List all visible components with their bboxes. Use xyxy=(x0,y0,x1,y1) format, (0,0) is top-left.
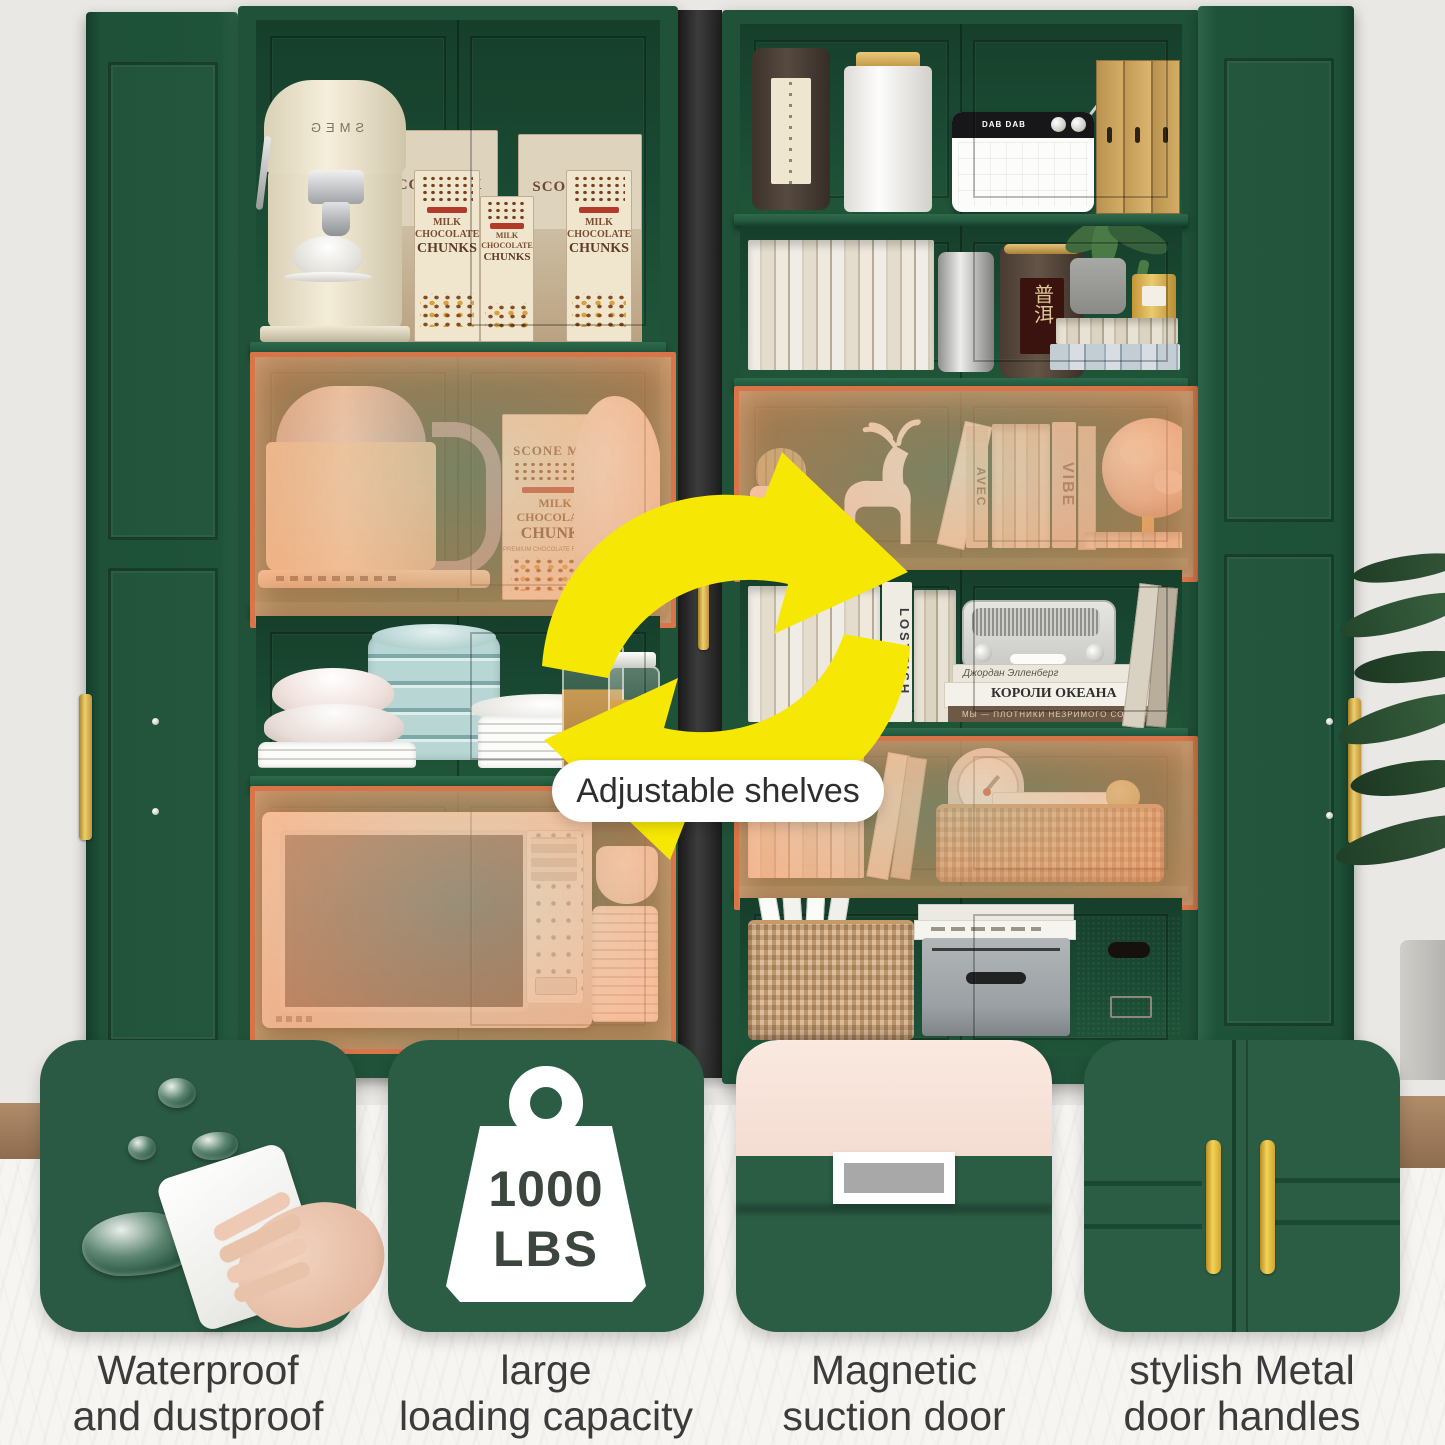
choc-line: CHUNKS xyxy=(415,241,479,257)
choc-line: MILK xyxy=(415,217,479,229)
start-button xyxy=(535,977,577,995)
book-flat: Джордан Элленберг xyxy=(952,664,1144,684)
book-text-lines xyxy=(931,927,1041,931)
weight-unit: LBS xyxy=(446,1220,646,1278)
choc-line: CHOCOLATE xyxy=(481,241,533,250)
choc-line: CHUNKS xyxy=(567,241,631,257)
radio-antenna xyxy=(1070,62,1131,139)
plant-pot xyxy=(1400,940,1445,1080)
plant-leaf xyxy=(1348,754,1445,803)
cookie-art xyxy=(572,293,626,327)
choc-line: CHOCOLATE xyxy=(415,229,479,241)
water-drop xyxy=(158,1078,196,1108)
brand-bar xyxy=(427,207,468,213)
right-shelf-6 xyxy=(740,898,1182,1056)
globe-landmass xyxy=(1120,438,1154,464)
cube-handle-hole xyxy=(1108,942,1150,958)
cookie-art xyxy=(420,293,474,327)
plate-stack xyxy=(592,906,658,1022)
hinge-dot xyxy=(1326,812,1333,819)
chocolate-chunks-box: MILK CHOCOLATE CHUNKS xyxy=(480,196,534,342)
left-shelf-1: SCONE MIX SCONE MIX MILK CHOCOLATE CHUNK… xyxy=(256,20,660,342)
radio-top-band: DAB DAB xyxy=(952,112,1094,138)
radio-knob xyxy=(1071,117,1086,132)
door-groove xyxy=(1084,1181,1202,1186)
caption-line: stylish Metal xyxy=(1068,1348,1416,1394)
fabric-storage-cube xyxy=(1076,916,1180,1036)
brand-bar xyxy=(579,207,620,213)
canister-label xyxy=(771,78,811,184)
feature-tile-handles xyxy=(1084,1040,1400,1332)
leaning-book xyxy=(1122,583,1161,728)
door-panel xyxy=(1224,554,1334,1026)
choc-line: MILK xyxy=(481,231,533,240)
microwave-brand xyxy=(276,1016,316,1022)
tea-label: 普洱 xyxy=(1020,278,1064,354)
brand-text: SMEG xyxy=(264,120,406,135)
book xyxy=(1078,426,1096,550)
magnet-plate-icon xyxy=(833,1152,955,1204)
weight-value: 1000 xyxy=(446,1160,646,1218)
adjustable-shelves-pill: Adjustable shelves xyxy=(552,760,884,822)
plant-leaf xyxy=(1351,548,1445,589)
pear xyxy=(1106,780,1140,812)
book-spine-vibe: VIBE xyxy=(1052,422,1076,548)
book-ru-author: Джордан Элленберг xyxy=(963,668,1058,679)
gold-handle xyxy=(1260,1140,1275,1274)
tea-gold-rim xyxy=(1004,244,1080,254)
wooden-file-box xyxy=(1124,60,1152,214)
book-flat xyxy=(914,920,1076,940)
door-groove xyxy=(1084,1224,1202,1229)
plant-leaf xyxy=(1353,646,1445,688)
vintage-radio xyxy=(962,600,1116,670)
left-door-gold-handle xyxy=(79,694,92,840)
radio-knob xyxy=(974,644,992,662)
candle-label xyxy=(1142,286,1166,306)
feature-caption: Magnetic suction door xyxy=(720,1348,1068,1440)
hinge-dot xyxy=(1326,718,1333,725)
books-under-globe xyxy=(1084,532,1182,548)
feature-tile-magnetic xyxy=(736,1040,1052,1332)
gold-candle-tin xyxy=(1132,274,1176,322)
kettle-base xyxy=(258,570,490,588)
clock-hand xyxy=(985,775,1000,791)
clock-dot xyxy=(983,788,991,796)
books-under-pot xyxy=(1056,318,1178,344)
book-flat: МЫ — ПЛОТНИКИ НЕЗРИМОГО СОБОРА xyxy=(948,706,1152,722)
espresso-machine: SMEG xyxy=(260,80,412,342)
scone-box-title: SCONE MIX xyxy=(519,179,641,196)
choc-speckle xyxy=(573,175,624,201)
wood-floor-strip-right xyxy=(1396,1096,1445,1168)
wicker-basket xyxy=(936,804,1164,882)
machine-head: SMEG xyxy=(264,80,406,174)
cookie-art xyxy=(485,303,529,331)
plate-stack xyxy=(258,742,416,768)
feature-caption: stylish Metal door handles xyxy=(1068,1348,1416,1440)
portafilter xyxy=(322,202,350,236)
choc-speckle xyxy=(421,175,472,201)
plant-pot xyxy=(1070,258,1126,314)
chocolate-chunks-box: MILK CHOCOLATE CHUNKS xyxy=(414,170,480,342)
door-groove xyxy=(1272,1178,1400,1183)
small-sprig xyxy=(1136,259,1150,279)
book-spine-avec: AVEC xyxy=(966,426,988,548)
shelf-board xyxy=(250,342,666,356)
left-cabinet-open-door xyxy=(86,12,238,1078)
feature-tile-waterproof xyxy=(40,1040,356,1332)
feature-tile-capacity: 1000 LBS xyxy=(388,1040,704,1332)
door-crease-shadow xyxy=(736,1204,1052,1214)
drawer-handle xyxy=(966,972,1026,984)
kettle-body xyxy=(266,442,436,572)
teal-bowl-top xyxy=(372,624,496,650)
kettle-handle xyxy=(432,422,501,576)
scone-mix-box: SCONE MIX xyxy=(518,134,642,342)
caption-line: large xyxy=(372,1348,720,1394)
right-cabinet-open-door xyxy=(1198,6,1354,1088)
metal-drawer-box xyxy=(922,938,1070,1036)
choc-line: CHOCOLATE xyxy=(567,229,631,241)
silver-canister xyxy=(938,252,994,372)
right-shelf-1: DAB DAB xyxy=(740,24,1182,214)
drawer-slit xyxy=(932,948,1060,951)
leaning-book xyxy=(1146,587,1178,728)
choc-line: CHUNKS xyxy=(481,251,533,264)
door-gap-line xyxy=(1232,1040,1236,1332)
file-slot xyxy=(1135,127,1140,143)
caption-line: suction door xyxy=(720,1394,1068,1440)
radio-knob xyxy=(1086,644,1104,662)
book-ru-sub: МЫ — ПЛОТНИКИ НЕЗРИМОГО СОБОРА xyxy=(962,710,1150,719)
caption-line: loading capacity xyxy=(372,1394,720,1440)
water-drop xyxy=(200,1266,230,1292)
globe-landmass xyxy=(1154,470,1182,494)
file-slot xyxy=(1163,127,1168,143)
wooden-file-box xyxy=(1096,60,1124,214)
door-panel xyxy=(108,568,218,1042)
gold-handle xyxy=(1206,1140,1221,1274)
radio-foot xyxy=(1010,654,1066,664)
wood-floor-strip-left xyxy=(0,1103,44,1159)
radio-knob xyxy=(1051,117,1066,132)
file-slot xyxy=(1107,127,1112,143)
book-row xyxy=(748,240,934,370)
chocolate-chunks-box: MILK CHOCOLATE CHUNKS xyxy=(566,170,632,342)
globe xyxy=(1102,418,1182,518)
box-photo xyxy=(519,229,641,342)
brand-bar xyxy=(490,223,523,229)
leaning-book xyxy=(937,421,993,550)
door-panel xyxy=(1224,58,1334,522)
shelf-board xyxy=(734,214,1188,226)
radio-mesh xyxy=(972,608,1100,636)
cube-label-frame xyxy=(1110,996,1152,1018)
book-flat: КОРОЛИ ОКЕАНА xyxy=(944,682,1156,708)
saucer xyxy=(284,272,372,282)
caption-line: door handles xyxy=(1068,1394,1416,1440)
white-tin xyxy=(844,66,932,212)
door-inner-pink xyxy=(736,1040,1052,1156)
right-shelf-2: 普洱 xyxy=(740,226,1182,378)
feature-caption: large loading capacity xyxy=(372,1348,720,1440)
deer-antlers xyxy=(865,422,918,446)
door-gap-line xyxy=(1246,1040,1248,1332)
choc-line: MILK xyxy=(567,217,631,229)
microwave-window xyxy=(280,830,528,1012)
door-panel xyxy=(108,62,218,540)
brown-canister xyxy=(752,48,830,210)
wooden-file-box xyxy=(1152,60,1180,214)
book-in-basket xyxy=(992,792,1124,808)
base-display xyxy=(276,576,396,581)
radio-speaker-grid xyxy=(958,142,1088,206)
weight-body: 1000 LBS xyxy=(446,1126,646,1302)
plant-leaf xyxy=(1104,226,1172,261)
globe-stem xyxy=(1142,516,1154,534)
tea-canister: 普洱 xyxy=(1000,244,1084,378)
water-puddle xyxy=(82,1212,194,1276)
door-groove xyxy=(1272,1220,1400,1225)
hinge-dot xyxy=(152,808,159,815)
water-drop xyxy=(128,1136,156,1160)
caption-line: and dustproof xyxy=(24,1394,372,1440)
adjustable-shelves-label: Adjustable shelves xyxy=(576,772,860,811)
tea-label-text: 普洱 xyxy=(1028,284,1057,324)
wicker-storage-basket xyxy=(748,920,914,1040)
electric-kettle xyxy=(264,386,490,598)
dab-radio: DAB DAB xyxy=(952,112,1094,212)
group-head xyxy=(308,170,364,204)
hinge-dot xyxy=(152,718,159,725)
machine-base xyxy=(260,326,410,342)
choc-speckle xyxy=(486,200,528,220)
caption-line: Magnetic xyxy=(720,1348,1068,1394)
caption-line: Waterproof xyxy=(24,1348,372,1394)
water-drop xyxy=(192,1132,238,1160)
shelf-board xyxy=(734,886,1188,898)
coffee-cup xyxy=(294,236,362,276)
book-ru-title: КОРОЛИ ОКЕАНА xyxy=(991,686,1117,702)
books-under-pot xyxy=(1050,344,1180,370)
shelf-board xyxy=(734,378,1188,390)
feature-caption: Waterproof and dustproof xyxy=(24,1348,372,1440)
product-scene: SCONE MIX SCONE MIX MILK CHOCOLATE CHUNK… xyxy=(0,0,1445,1445)
radio-brand-text: DAB DAB xyxy=(982,120,1026,129)
book-row xyxy=(992,424,1050,548)
